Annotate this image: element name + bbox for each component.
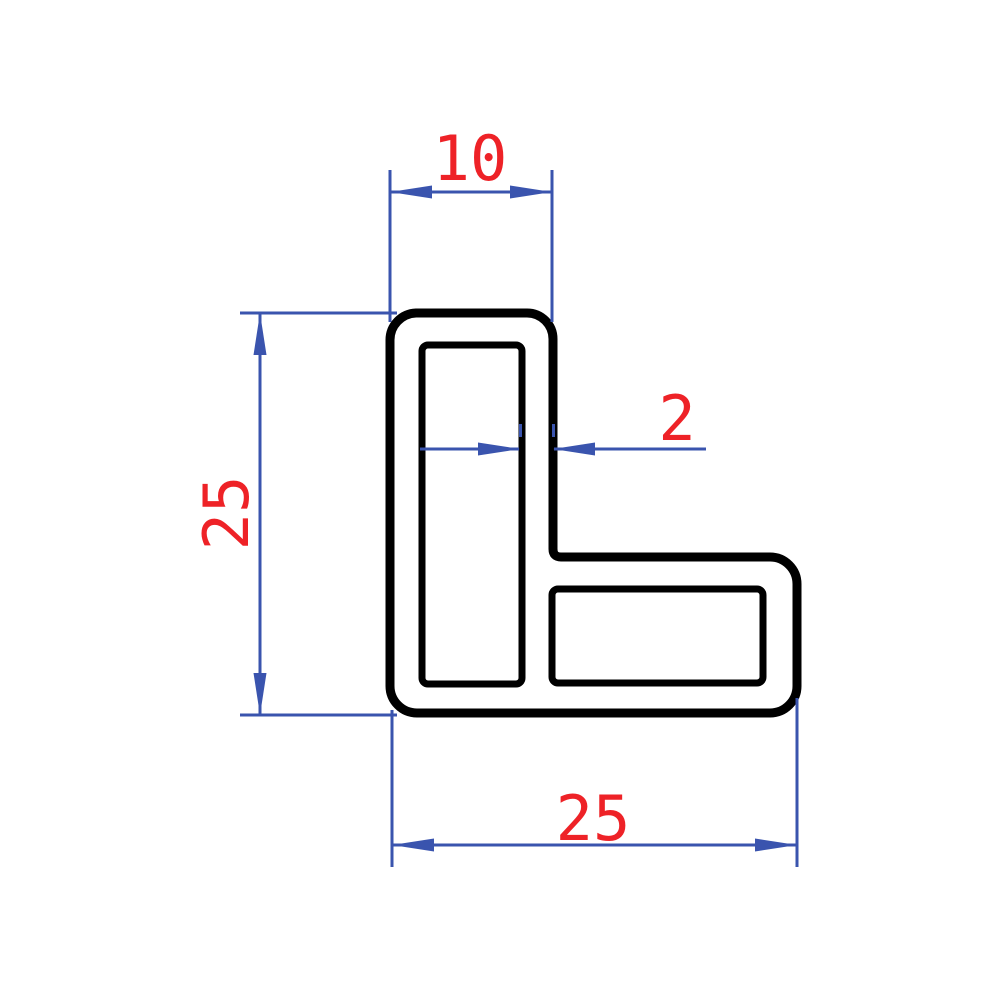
arrowhead-right-icon [510, 186, 552, 199]
dimension-value-left: 25 [190, 476, 263, 551]
arrowhead-up-icon [254, 313, 267, 355]
outer-l-profile-path [390, 313, 797, 713]
profile-drawing: 10 25 2 [0, 0, 1000, 1000]
vertical-chamber-rect [422, 345, 522, 684]
profile-outline-group [390, 313, 797, 713]
technical-drawing-canvas: 10 25 2 [0, 0, 1000, 1000]
dimension-top-flange-width: 10 [390, 122, 552, 322]
dimension-wall-thickness: 2 [420, 382, 706, 456]
arrowhead-right-icon [755, 839, 797, 852]
arrowhead-down-icon [254, 673, 267, 715]
dimension-left-height: 25 [190, 313, 397, 715]
arrowhead-right-icon [478, 443, 520, 456]
dimension-value-top: 10 [433, 122, 508, 195]
arrowhead-left-icon [392, 839, 434, 852]
arrowhead-left-icon [390, 186, 432, 199]
dimension-value-bottom: 25 [556, 782, 631, 855]
dimension-bottom-width: 25 [392, 698, 797, 867]
horizontal-chamber-rect [552, 589, 763, 683]
dimension-value-thickness: 2 [658, 382, 695, 455]
arrowhead-left-icon [553, 443, 595, 456]
